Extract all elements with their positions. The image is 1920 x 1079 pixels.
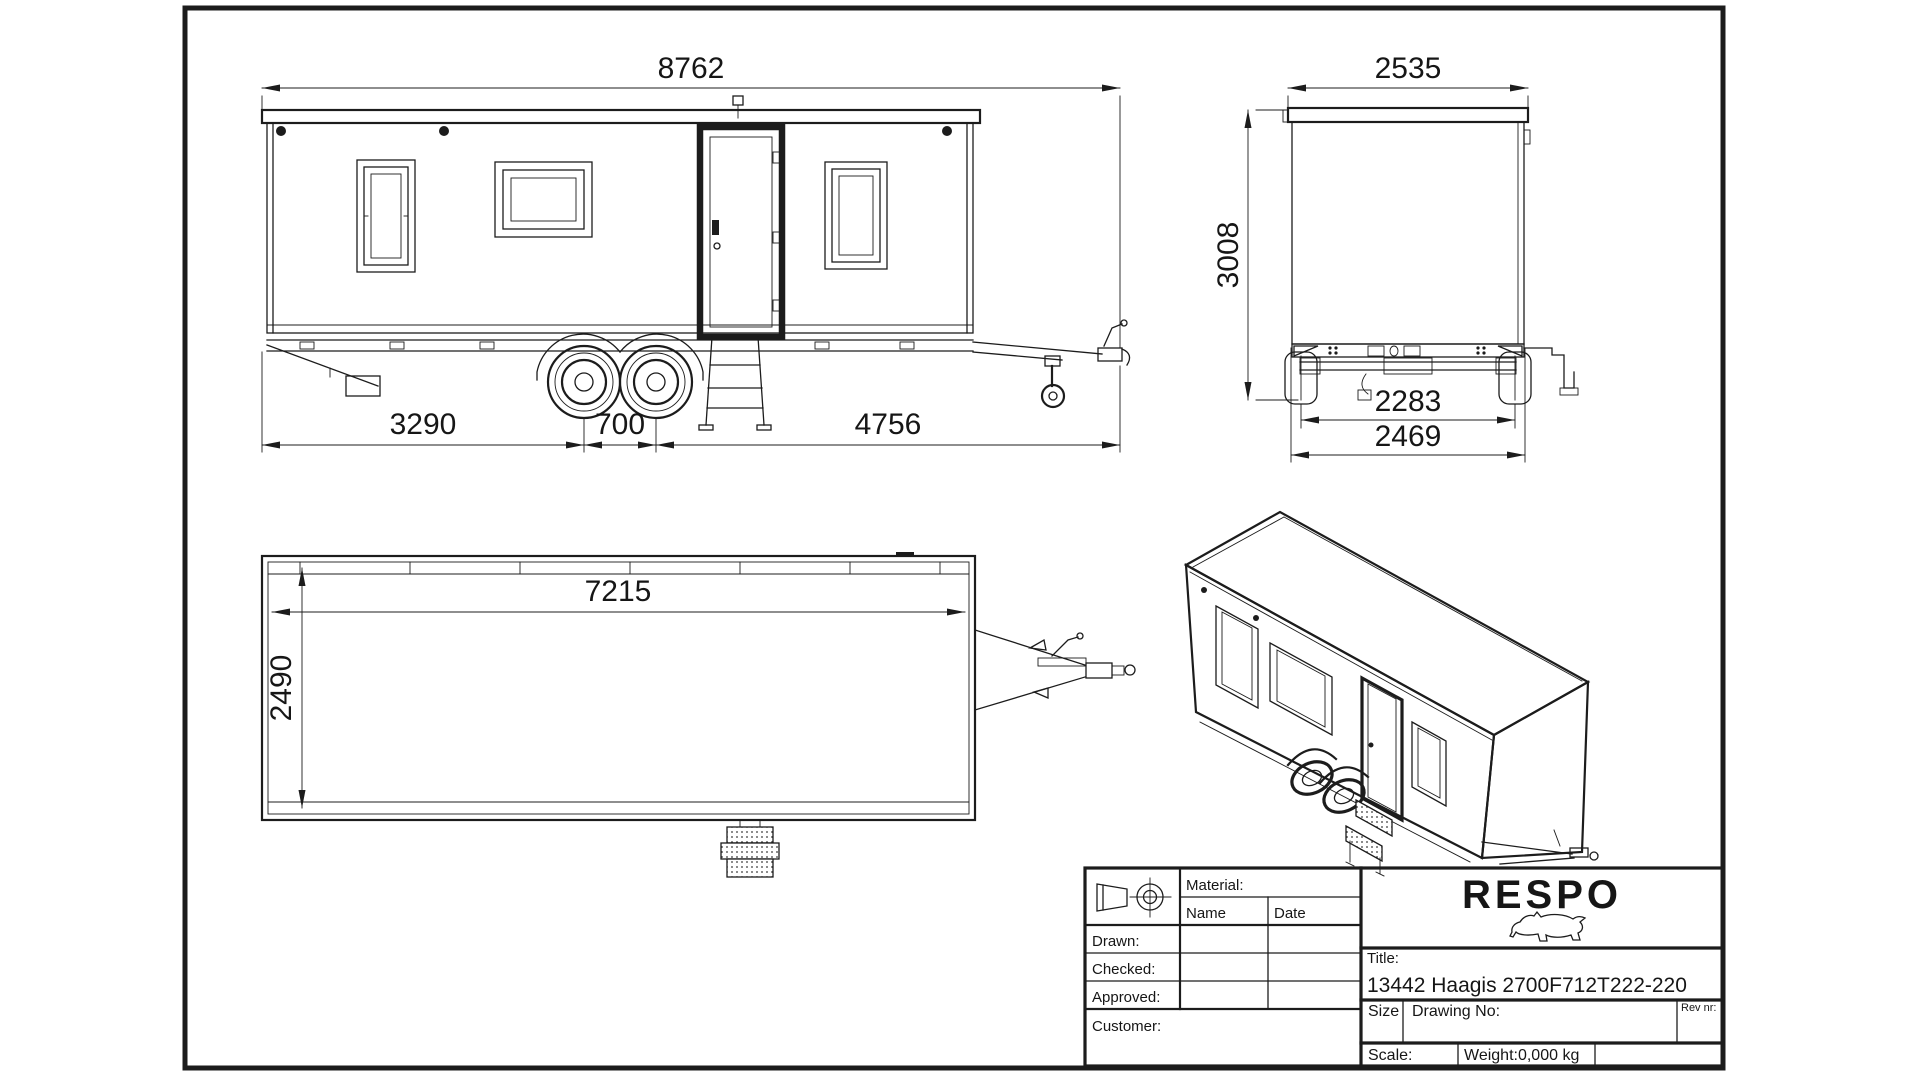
plan-drawbar (975, 630, 1135, 710)
dim-text-overall-width: 2535 (1375, 52, 1442, 85)
date-label: Date (1274, 905, 1306, 922)
plan-view: 7215 2490 (262, 552, 1135, 877)
rear-view: 2535 3008 2283 2469 (1212, 52, 1578, 462)
plan-step (721, 820, 779, 877)
drawing-title: 13442 Haagis 2700F712T222-220 (1367, 974, 1687, 997)
roof-vent-dot (276, 126, 286, 136)
scale-label: Scale: (1368, 1047, 1412, 1064)
drawing-canvas: 8762 3290 700 4756 (0, 0, 1920, 1079)
respo-wordmark: RESPO (1462, 873, 1622, 917)
side-wheels (537, 334, 703, 418)
dim-rear-height: 3008 (1212, 110, 1298, 400)
side-drawbar (973, 320, 1130, 407)
name-label: Name (1186, 905, 1226, 922)
checked-label: Checked: (1092, 961, 1155, 978)
customer-label: Customer: (1092, 1018, 1161, 1035)
dim-text-axle-to-coupling: 4756 (855, 408, 922, 441)
rear-support-crank (1524, 348, 1578, 395)
dim-text-overall-length: 8762 (658, 52, 725, 85)
drawing-sheet: 8762 3290 700 4756 (0, 0, 1920, 1079)
roof-vent-dot (439, 126, 449, 136)
iso-window-3 (1412, 722, 1446, 806)
title-label: Title: (1367, 950, 1399, 967)
dim-rear-width: 2535 (1288, 52, 1528, 108)
first-angle-projection-icon (1097, 878, 1171, 917)
title-block: Material: Name Date Drawn: Checked: Appr… (1085, 868, 1723, 1066)
iso-drawbar (1482, 830, 1598, 864)
dim-text-rear-to-axle: 3290 (390, 408, 457, 441)
dim-side-bottom: 3290 700 4756 (262, 352, 1120, 452)
isometric-view (1186, 512, 1598, 876)
iso-window-1 (1216, 606, 1258, 708)
weight-value: Weight:0,000 kg (1464, 1047, 1579, 1064)
side-view: 8762 3290 700 4756 (262, 52, 1130, 452)
iso-window-2 (1270, 643, 1332, 735)
dim-side-overall: 8762 (262, 52, 1120, 348)
roof-vent-dot (942, 126, 952, 136)
size-label: Size (1368, 1003, 1399, 1020)
drawn-label: Drawn: (1092, 933, 1140, 950)
respo-logo: RESPO (1462, 873, 1622, 941)
dim-text-overall-height: 3008 (1212, 222, 1245, 289)
dim-text-internal-width: 2490 (265, 655, 298, 722)
dim-plan-length: 7215 (272, 575, 965, 616)
dim-text-body-width: 2469 (1375, 420, 1442, 453)
side-window-2 (495, 162, 592, 237)
material-label: Material: (1186, 877, 1244, 894)
dim-text-track-width: 2283 (1375, 385, 1442, 418)
side-window-3 (825, 162, 887, 269)
dim-text-internal-length: 7215 (585, 575, 652, 608)
side-door (700, 96, 782, 337)
dim-plan-width: 2490 (265, 568, 306, 808)
dim-text-axle-spacing: 700 (595, 408, 645, 441)
side-window-1 (357, 160, 415, 272)
approved-label: Approved: (1092, 989, 1160, 1006)
drawing-no-label: Drawing No: (1412, 1003, 1500, 1020)
rev-label: Rev nr: (1681, 1002, 1716, 1014)
